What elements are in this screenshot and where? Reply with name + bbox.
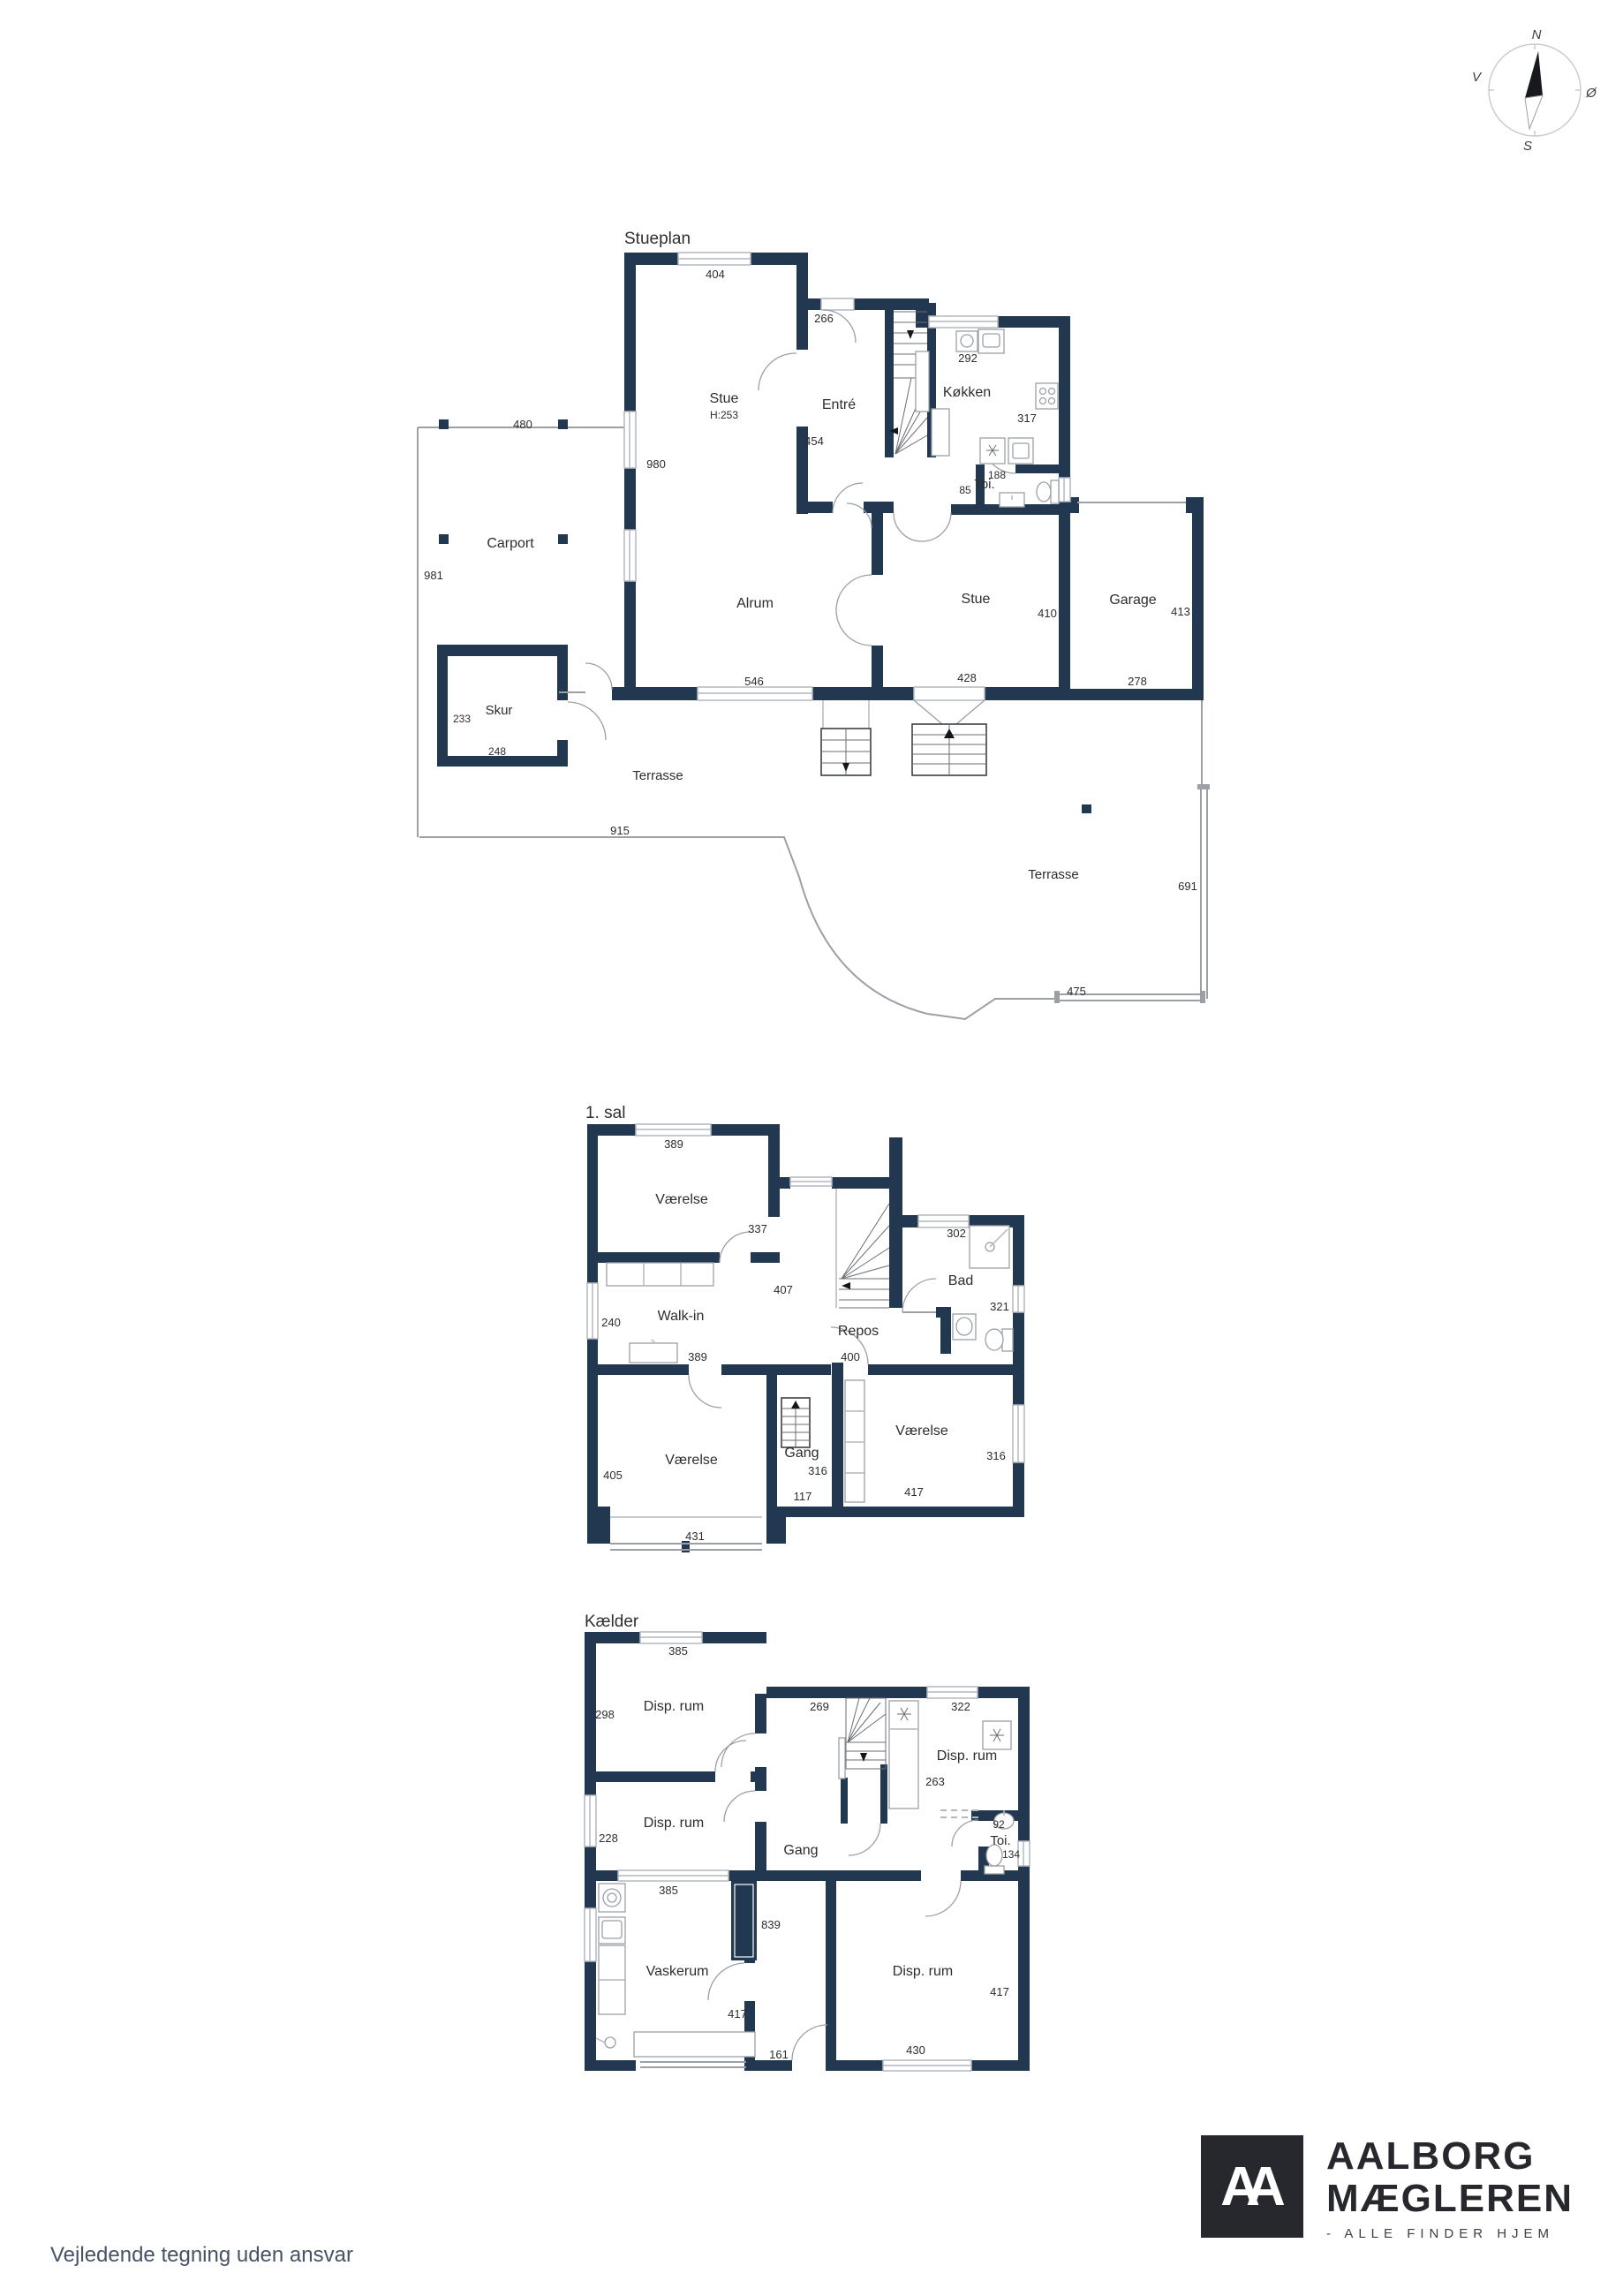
dim-475: 475 [1067, 985, 1086, 998]
dim-240: 240 [601, 1316, 621, 1329]
room-label-kokken: Køkken [943, 385, 991, 400]
dim-431: 431 [685, 1529, 705, 1543]
room-height-stue1: H:253 [710, 409, 738, 421]
floorplan-page: { "compass": {"north":"N","south":"S","e… [0, 0, 1623, 2296]
room-label-skur: Skur [486, 703, 513, 718]
stueplan-walls [437, 253, 1204, 813]
room-label-walkin: Walk-in [658, 1309, 705, 1324]
dim-266: 266 [814, 312, 834, 325]
dim-915: 915 [610, 824, 630, 837]
stueplan-title: Stueplan [624, 230, 691, 248]
room-label-alrum: Alrum [736, 596, 774, 611]
dim-322: 322 [951, 1700, 970, 1713]
dim-134: 134 [1002, 1848, 1020, 1861]
dim-417b: 417 [990, 1985, 1009, 1998]
room-label-stue2: Stue [962, 592, 991, 607]
dim-407: 407 [774, 1283, 793, 1296]
dim-404: 404 [706, 268, 725, 281]
dim-233: 233 [453, 713, 471, 725]
dim-480: 480 [513, 418, 532, 431]
first-floor-gang-stairs [781, 1398, 810, 1447]
basement-title: Kælder [585, 1612, 639, 1631]
first-floor-title: 1. sal [585, 1104, 625, 1122]
basement-labels: Disp. rum 385 298 Disp. rum 228 269 322 … [595, 1644, 1020, 2061]
dim-410: 410 [1038, 607, 1057, 620]
dim-316a: 316 [808, 1464, 827, 1477]
dim-85: 85 [959, 484, 971, 496]
room-label-terrasse2: Terrasse [1028, 867, 1079, 882]
room-label-terrasse1: Terrasse [632, 768, 683, 783]
dim-981: 981 [424, 569, 443, 582]
dim-302: 302 [947, 1227, 966, 1240]
dim-248: 248 [488, 745, 506, 758]
dim-417a: 417 [728, 2007, 747, 2020]
compass-needle-south [1525, 95, 1543, 129]
dim-428: 428 [957, 671, 977, 684]
dim-417: 417 [904, 1485, 924, 1499]
dim-316b: 316 [986, 1449, 1006, 1462]
stueplan-toilet-fixtures [1000, 480, 1059, 507]
compass-n: N [1532, 27, 1542, 42]
dim-188: 188 [988, 469, 1006, 481]
room-label-gang-k: Gang [783, 1843, 818, 1858]
dim-839: 839 [761, 1918, 781, 1931]
stueplan-site-lines [418, 427, 1210, 1019]
room-label-stue1: Stue [710, 391, 739, 406]
dim-385b: 385 [659, 1884, 678, 1897]
brand-tagline: - ALLE FINDER HJEM [1326, 2226, 1574, 2241]
compass-e: Ø [1585, 86, 1597, 101]
dim-389b: 389 [688, 1350, 707, 1363]
compass-needle-north [1525, 51, 1543, 98]
dim-263: 263 [925, 1775, 945, 1788]
dim-546: 546 [744, 675, 764, 688]
dim-405: 405 [603, 1469, 623, 1482]
room-label-disp2: Disp. rum [644, 1816, 704, 1831]
dim-691: 691 [1178, 880, 1197, 893]
room-label-toi-k: Toi. [990, 1833, 1010, 1848]
brand-text: AALBORG MÆGLEREN - ALLE FINDER HJEM [1326, 2135, 1574, 2241]
stueplan-terrace-stairs [821, 700, 986, 775]
dim-337: 337 [748, 1222, 767, 1235]
dim-269: 269 [810, 1700, 829, 1713]
dim-161: 161 [769, 2048, 789, 2061]
dim-430: 430 [906, 2043, 925, 2057]
room-label-bad: Bad [948, 1273, 973, 1288]
room-label-disp3: Disp. rum [937, 1748, 997, 1764]
compass-s: S [1523, 139, 1532, 154]
compass-rose-icon: N Ø S V [1457, 16, 1616, 162]
dim-228: 228 [599, 1832, 618, 1845]
room-label-repos: Repos [838, 1324, 879, 1339]
dim-454: 454 [804, 434, 824, 448]
room-label-room2: Værelse [665, 1453, 718, 1468]
compass-w: V [1472, 70, 1483, 85]
brand-name-line1: AALBORG [1326, 2135, 1574, 2178]
dim-292: 292 [958, 351, 978, 365]
dim-400: 400 [841, 1350, 860, 1363]
room-label-garage: Garage [1109, 593, 1156, 608]
room-label-vaskerum: Vaskerum [646, 1964, 709, 1979]
brand-logo: AA AALBORG MÆGLEREN - ALLE FINDER HJEM [1201, 2135, 1574, 2241]
basement-stairs [839, 1698, 886, 1779]
stueplan-floorplan: Stueplan [402, 219, 1241, 1031]
dim-92: 92 [993, 1818, 1005, 1831]
stueplan-windows [559, 253, 1186, 700]
basement-floorplan: Kælder [570, 1610, 1073, 2091]
dim-117: 117 [794, 1490, 812, 1503]
room-label-carport: Carport [487, 536, 534, 551]
first-floor-stairs [836, 1189, 889, 1308]
dim-980: 980 [646, 457, 666, 471]
room-label-disp4: Disp. rum [893, 1964, 953, 1979]
room-label-entre: Entré [822, 397, 856, 412]
dim-389a: 389 [664, 1137, 683, 1151]
room-label-room3: Værelse [895, 1424, 948, 1439]
first-floor-floorplan: 1. sal [570, 1102, 1073, 1561]
brand-monogram-icon: AA [1201, 2135, 1303, 2238]
brand-name-line2: MÆGLEREN [1326, 2178, 1574, 2220]
dim-385a: 385 [668, 1644, 688, 1658]
dim-317: 317 [1017, 412, 1037, 425]
disclaimer-text: Vejledende tegning uden ansvar [50, 2243, 353, 2268]
room-label-disp1: Disp. rum [644, 1699, 704, 1714]
stueplan-labels: Stue H:253 404 266 Entré 454 Køkken 292 … [424, 268, 1197, 998]
room-label-gang: Gang [784, 1446, 819, 1461]
dim-321: 321 [990, 1300, 1009, 1313]
dim-278: 278 [1128, 675, 1147, 688]
dim-413: 413 [1171, 605, 1190, 618]
dim-298: 298 [595, 1708, 615, 1721]
room-label-room1: Værelse [655, 1192, 708, 1207]
